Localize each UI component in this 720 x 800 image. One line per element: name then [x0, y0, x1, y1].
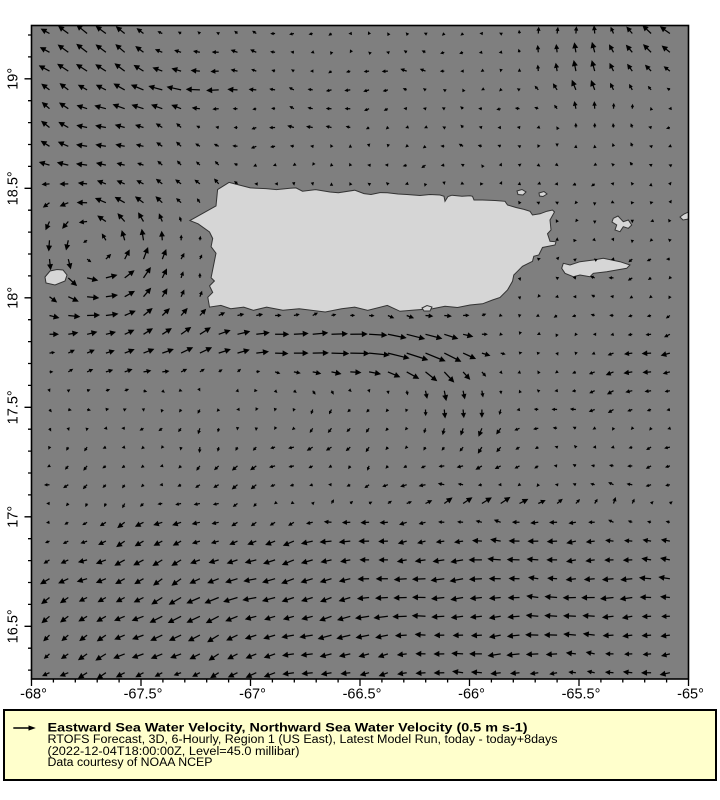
svg-text:18.5°: 18.5° [6, 171, 22, 205]
svg-text:-68°: -68° [20, 687, 47, 703]
svg-text:Data courtesy of NOAA NCEP: Data courtesy of NOAA NCEP [48, 757, 213, 769]
svg-text:-65°: -65° [677, 687, 704, 703]
svg-text:-67.5°: -67.5° [124, 687, 163, 703]
svg-text:-65.5°: -65.5° [562, 687, 601, 703]
svg-text:-66°: -66° [458, 687, 485, 703]
svg-text:16.5°: 16.5° [6, 609, 22, 643]
svg-text:17.5°: 17.5° [6, 390, 22, 424]
svg-text:RTOFS Forecast, 3D, 6-Hourly,: RTOFS Forecast, 3D, 6-Hourly, Region 1 (… [48, 734, 558, 746]
svg-text:18°: 18° [6, 287, 22, 309]
svg-text:19°: 19° [6, 68, 22, 90]
svg-text:(2022-12-04T18:00:00Z, Level=4: (2022-12-04T18:00:00Z, Level=45.0 millib… [48, 746, 300, 758]
svg-text:-66.5°: -66.5° [343, 687, 382, 703]
svg-text:-67°: -67° [239, 687, 266, 703]
svg-text:Eastward Sea Water Velocity, N: Eastward Sea Water Velocity, Northward S… [48, 723, 528, 735]
svg-text:17°: 17° [6, 506, 22, 528]
